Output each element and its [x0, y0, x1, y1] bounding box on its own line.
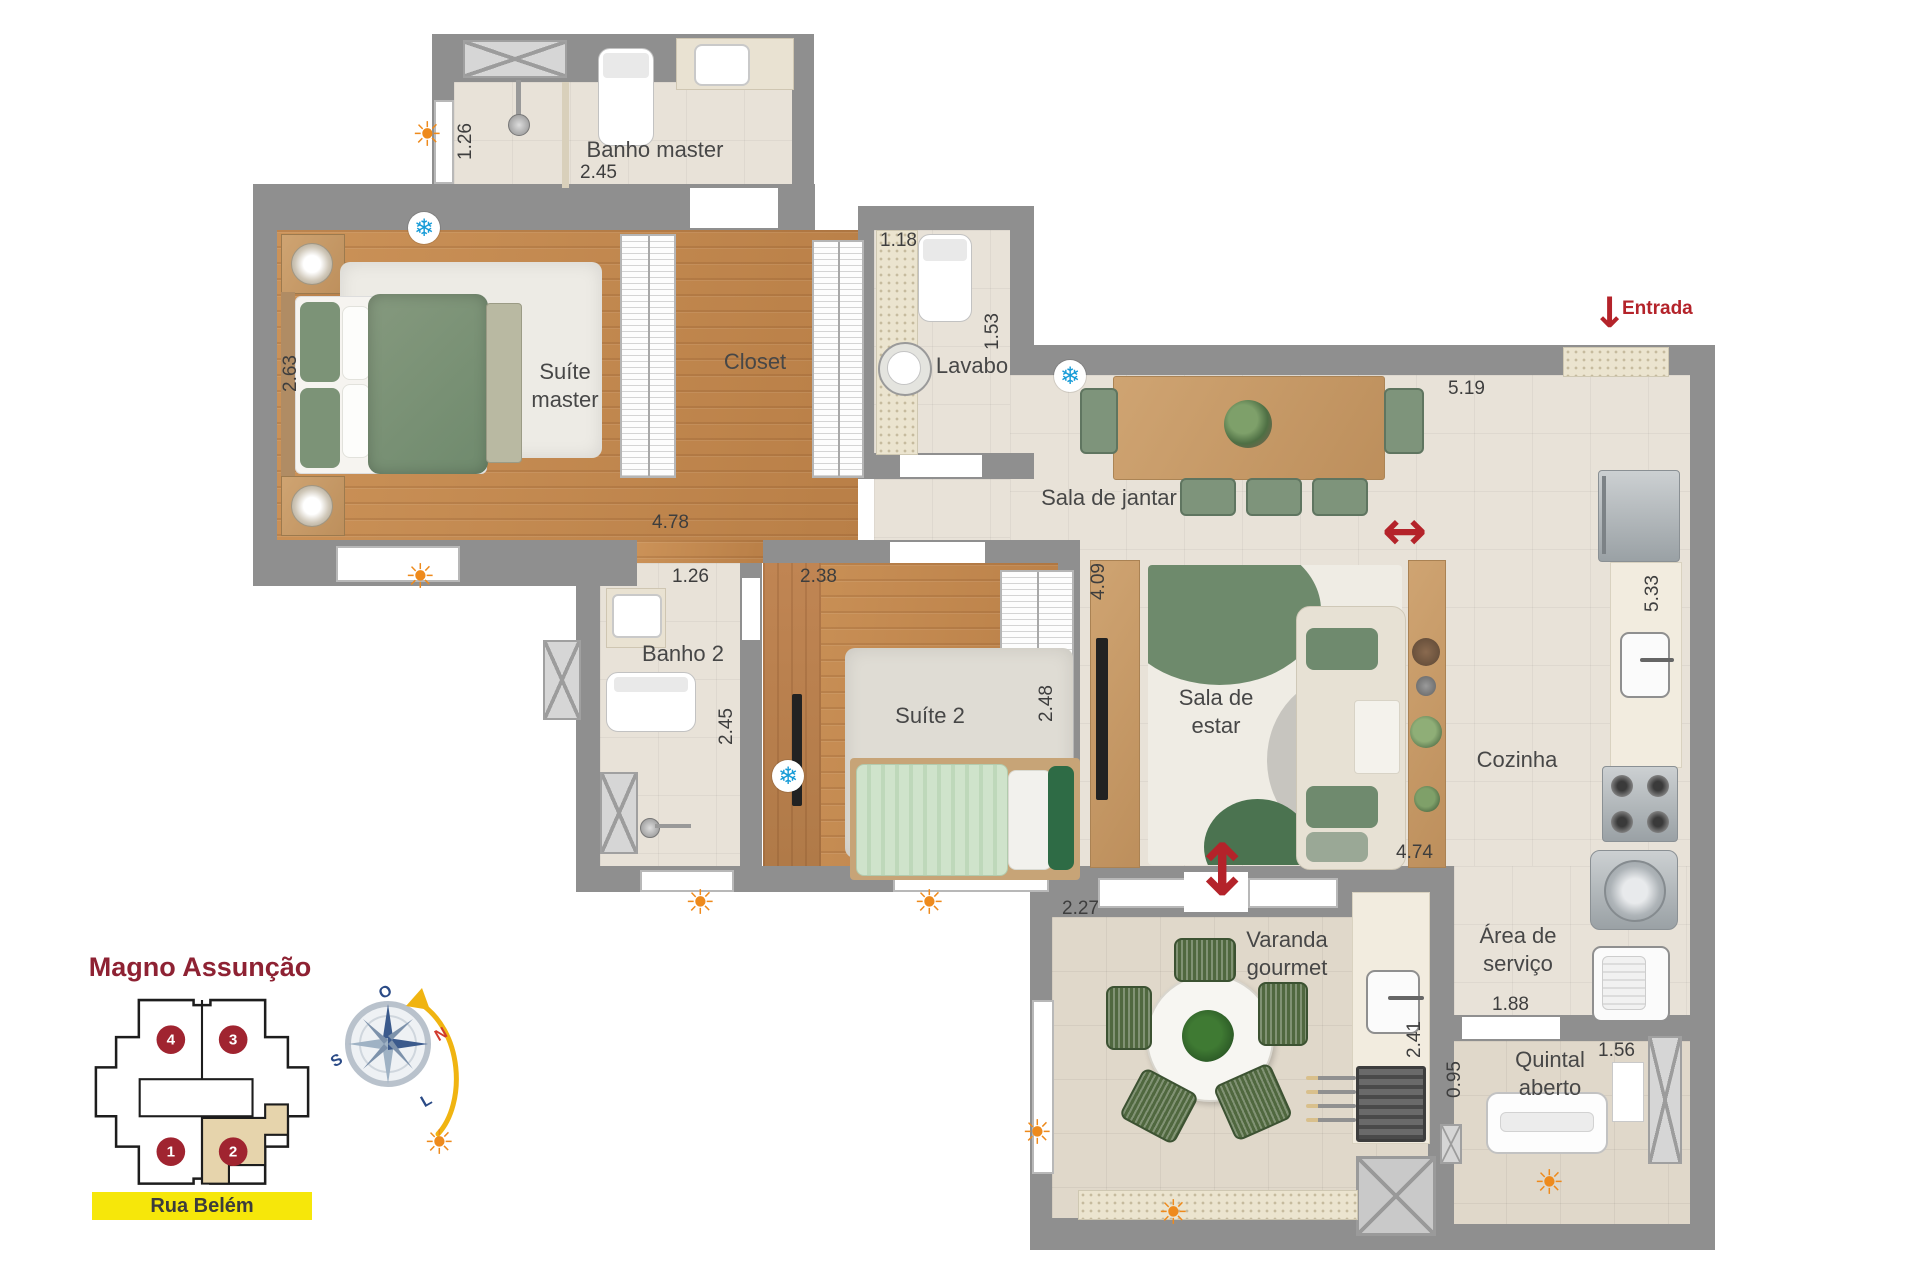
bed-duvet: [856, 764, 1008, 876]
unit-number-4: 4: [167, 1032, 176, 1049]
quintal-door: [1612, 1062, 1644, 1122]
grill: [1356, 1066, 1426, 1142]
planter-strip: [1078, 1190, 1358, 1220]
keyplan-title: Magno Assunção: [70, 952, 330, 983]
wall: [253, 184, 277, 586]
laundry-tank: [1592, 946, 1670, 1022]
wall: [1428, 1224, 1715, 1250]
vent-grille: [463, 40, 567, 78]
sun-icon: ☀: [914, 886, 944, 920]
gourmet-faucet: [1388, 996, 1424, 1000]
fridge: [1598, 470, 1680, 562]
floor-plan: Banho master Suíte master Closet Lavabo …: [0, 0, 1920, 1280]
elevator-shaft: [1356, 1156, 1436, 1236]
sun-icon: ☀: [405, 560, 435, 594]
fridge-handle: [1602, 476, 1606, 554]
room-label-area-servico: Área de serviço: [1452, 922, 1584, 977]
wall: [1690, 345, 1715, 1250]
glass-partition: [562, 82, 569, 188]
corridor-floor: [637, 540, 763, 563]
sun-icon: ☀: [685, 886, 715, 920]
room-label-banho-master: Banho master: [560, 136, 750, 164]
room-label-quintal: Quintal aberto: [1490, 1046, 1610, 1101]
washer-drum: [1604, 860, 1666, 922]
toilet: [918, 234, 972, 322]
sofa-pillow: [1306, 628, 1378, 670]
decor-pot: [1412, 638, 1440, 666]
table-plant: [1224, 400, 1272, 448]
room-label-sala-jantar: Sala de jantar: [1024, 484, 1194, 512]
pillow: [342, 384, 370, 458]
window: [336, 546, 460, 582]
pillow: [300, 302, 340, 382]
console-shelf: [1408, 560, 1446, 868]
stove: [1602, 766, 1678, 842]
pillow: [1008, 770, 1052, 870]
shower-head-icon: [640, 818, 660, 838]
vent-shaft: [1440, 1124, 1462, 1164]
table-centerpiece-plant: [1182, 1010, 1234, 1062]
compass-letter-s: S: [330, 1051, 346, 1071]
entry-label: Entrada: [1622, 298, 1693, 320]
ac-snowflake-icon: ❄: [772, 760, 804, 792]
room-label-suite-master: Suíte master: [505, 358, 625, 413]
compass-letter-l: L: [418, 1091, 435, 1111]
lamp: [291, 243, 333, 285]
ac-snowflake-icon: ❄: [1054, 360, 1086, 392]
shower-arm: [655, 824, 691, 828]
unit-number-2: 2: [229, 1144, 237, 1161]
wicker-chair: [1106, 986, 1152, 1050]
flow-arrow-vertical: ↕: [1192, 834, 1252, 906]
dim-varanda-w: 2.27: [1062, 898, 1099, 920]
dim-suite-master-w: 4.78: [652, 512, 689, 534]
dim-banho-master-h: 1.26: [455, 123, 477, 160]
door-banho2: [742, 578, 760, 640]
pillow: [342, 306, 370, 380]
skewer: [1306, 1118, 1356, 1122]
vanity-sink: [694, 44, 750, 86]
wall: [576, 563, 600, 892]
rug-shape-green: [1148, 565, 1321, 685]
dim-quintal-h: 0.95: [1444, 1061, 1466, 1098]
room-label-banho2: Banho 2: [628, 640, 738, 668]
vent-shaft: [600, 772, 638, 854]
door-suite2: [890, 542, 985, 563]
dining-chair: [1080, 388, 1118, 454]
dim-quintal-w: 1.56: [1598, 1040, 1635, 1062]
garden-bench: [1486, 1092, 1608, 1154]
door-quintal: [1462, 1017, 1560, 1039]
decor-pot: [1416, 676, 1436, 696]
entry-mat: [1563, 347, 1669, 377]
street-label-bar: Rua Belém: [92, 1192, 312, 1220]
wall: [858, 206, 1034, 230]
toilet: [598, 48, 654, 146]
vent-shaft: [543, 640, 581, 720]
wardrobe: [620, 234, 676, 478]
compass-arrowhead: [406, 988, 430, 1010]
tv: [1096, 638, 1108, 800]
unit-number-3: 3: [229, 1032, 237, 1049]
room-label-cozinha: Cozinha: [1462, 746, 1572, 774]
dim-estar-h: 4.09: [1088, 563, 1110, 600]
decor-plant: [1414, 786, 1440, 812]
ac-snowflake-icon: ❄: [408, 212, 440, 244]
skewer: [1306, 1076, 1356, 1080]
kitchen-sink: [1620, 632, 1670, 698]
wall: [1667, 345, 1715, 375]
dim-servico-w: 1.88: [1492, 994, 1529, 1016]
pillow: [300, 388, 340, 468]
toilet: [606, 672, 696, 732]
sun-icon: ☀: [1158, 1196, 1188, 1230]
dim-jantar-w: 5.19: [1448, 378, 1485, 400]
dining-chair: [1246, 478, 1302, 516]
sofa-tray: [1354, 700, 1400, 774]
dim-lavabo-h: 1.53: [982, 313, 1004, 350]
keyplan-building: 4 3 1 2: [92, 995, 312, 1187]
compass-letter-o: O: [376, 982, 395, 1003]
room-label-varanda: Varanda gourmet: [1222, 926, 1352, 981]
wall: [576, 540, 637, 563]
vent-shaft: [1648, 1036, 1682, 1164]
pillow: [1048, 766, 1074, 870]
wardrobe: [812, 240, 864, 478]
room-label-suite2: Suíte 2: [880, 702, 980, 730]
compass-rose: O N S L ☀: [330, 982, 460, 1162]
shower-arm: [516, 80, 521, 118]
dim-banho2-h: 2.45: [716, 708, 738, 745]
dim-varanda-h: 2.41: [1404, 1021, 1426, 1058]
skewer: [1306, 1090, 1356, 1094]
sofa-pillow: [1306, 786, 1378, 828]
dim-lavabo-w: 1.18: [880, 230, 917, 252]
compass-sun-icon: ☀: [424, 1123, 454, 1162]
flow-arrow-horizontal: ↔: [1382, 504, 1427, 558]
dim-banho2-w: 1.26: [672, 566, 709, 588]
bed-duvet: [368, 294, 488, 474]
unit-number-1: 1: [167, 1144, 175, 1161]
sun-icon: ☀: [412, 118, 442, 152]
sun-icon: ☀: [1534, 1166, 1564, 1200]
window: [1098, 878, 1188, 908]
round-sink-basin: [887, 351, 921, 385]
vanity-sink: [612, 594, 662, 638]
dim-suite2-w: 2.38: [800, 566, 837, 588]
room-label-lavabo: Lavabo: [922, 352, 1022, 380]
skewer: [1306, 1104, 1356, 1108]
sun-icon: ☀: [1022, 1116, 1052, 1150]
kitchen-faucet: [1640, 658, 1674, 662]
dim-banho-master-w: 2.45: [580, 162, 617, 184]
window: [1248, 878, 1338, 908]
dining-chair: [1384, 388, 1424, 454]
decor-plant: [1410, 716, 1442, 748]
sofa-pillow: [1306, 832, 1368, 862]
lamp: [291, 485, 333, 527]
dim-suite2-h: 2.48: [1036, 685, 1058, 722]
dining-chair: [1312, 478, 1368, 516]
room-label-sala-estar: Sala de estar: [1158, 684, 1274, 739]
door-lavabo: [900, 455, 982, 477]
dim-cozinha-h: 5.33: [1642, 575, 1664, 612]
wicker-chair: [1258, 982, 1308, 1046]
shower-head-icon: [508, 114, 530, 136]
door-banho-master: [690, 188, 778, 228]
dim-estar-w: 4.74: [1396, 842, 1433, 864]
dim-suite-master-bed: 2.63: [280, 355, 302, 392]
room-label-closet: Closet: [700, 348, 810, 376]
